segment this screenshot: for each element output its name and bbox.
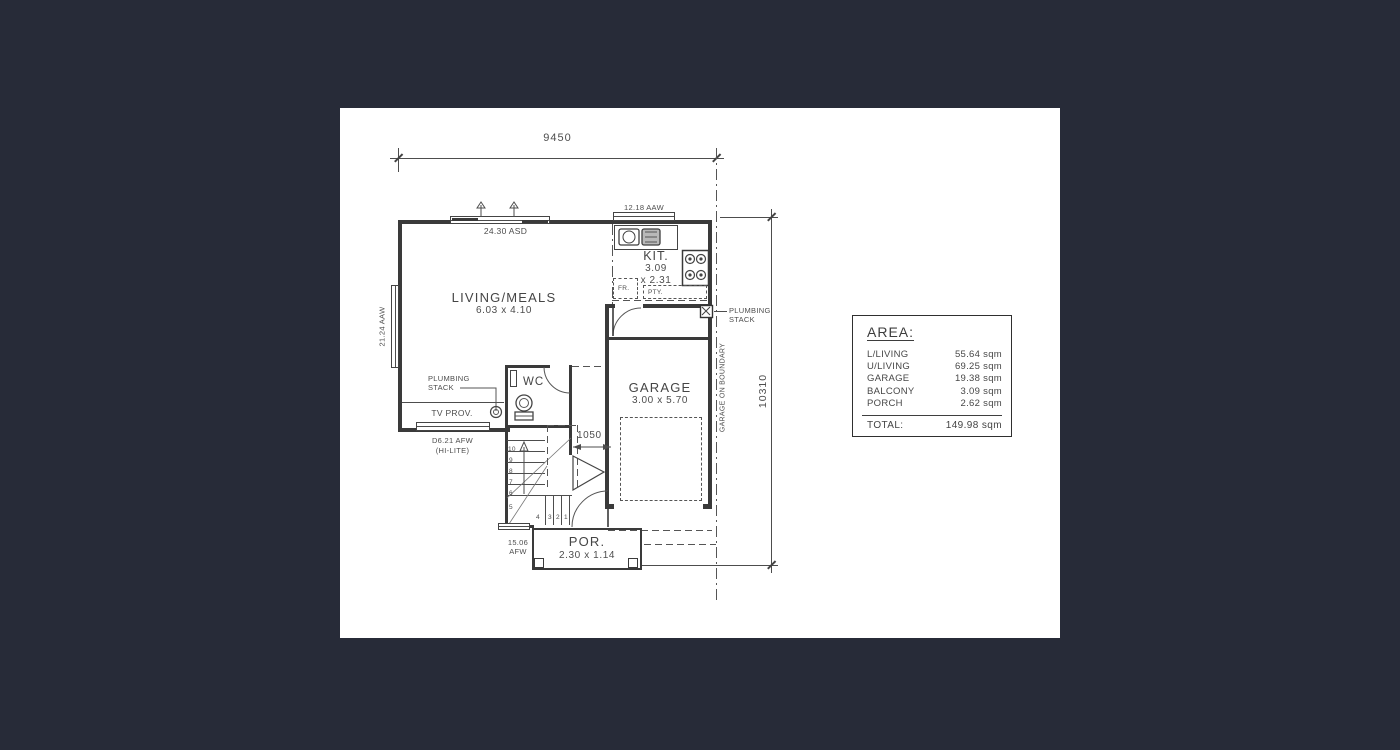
window-slider-label: 24.30 ASD <box>458 226 553 236</box>
window-kitchen-label: 12.18 AAW <box>610 203 678 212</box>
plumbing-left-label2: STACK <box>428 383 454 392</box>
stair-up-arrow-icon <box>518 440 530 496</box>
dim-top-ext-left <box>398 148 399 172</box>
stair-winder-lines <box>507 436 573 526</box>
fridge-label: FR. <box>618 285 629 292</box>
garage-door-jamb <box>703 504 712 509</box>
room-porch-name: POR. <box>536 534 638 549</box>
stair-number: 10 <box>508 446 516 453</box>
stair-number: 4 <box>536 514 540 521</box>
area-table-title: AREA: <box>867 324 1002 340</box>
area-total-row: TOTAL: 149.98 sqm <box>867 420 1002 431</box>
area-row-value: 69.25 sqm <box>955 361 1002 373</box>
room-living-size: 6.03 x 4.10 <box>424 305 584 316</box>
room-porch-size: 2.30 x 1.14 <box>536 550 638 561</box>
window-slider <box>450 216 550 224</box>
area-total-value: 149.98 sqm <box>946 420 1002 431</box>
cooktop-icon <box>682 250 709 286</box>
dim-top-label: 9450 <box>490 132 625 144</box>
stair-number: 1 <box>564 514 568 521</box>
area-row: BALCONY 3.09 sqm <box>867 386 1002 398</box>
window-kitchen <box>613 212 675 221</box>
room-living-name: LIVING/MEALS <box>424 290 584 305</box>
stair-number: 6 <box>509 490 513 497</box>
stair-void-line <box>547 425 548 491</box>
bulkhead-line <box>572 366 605 367</box>
wall-garage-top <box>605 337 712 340</box>
app-background: { "colors": { "page_bg": "#272b38", "can… <box>0 0 1400 750</box>
area-row-label: BALCONY <box>867 386 915 398</box>
window-left <box>391 285 399 368</box>
car-space <box>620 417 702 501</box>
boundary-line <box>716 148 717 600</box>
stair-number: 7 <box>509 479 513 486</box>
room-kitchen-size-w: 3.09 <box>628 263 684 274</box>
area-row: L/LIVING 55.64 sqm <box>867 349 1002 361</box>
window-left-label: 21.24 AAW <box>378 297 387 357</box>
area-table-divider <box>862 415 1002 416</box>
leader-line <box>714 311 727 312</box>
window-entry <box>498 523 530 530</box>
dim-stair-line <box>572 442 612 452</box>
window-porch-label1: 15.06 <box>505 538 531 547</box>
tv-nook-line <box>402 402 504 403</box>
window-hilite-label1: D6.21 AFW <box>410 436 495 445</box>
window-porch-label2: AFW <box>505 547 531 556</box>
entry-door-arc-icon <box>572 491 609 528</box>
stair-number: 2 <box>556 514 560 521</box>
plumbing-stack-icon <box>700 305 713 318</box>
plumbing-right-label1: PLUMBING <box>729 306 771 315</box>
area-row-label: U/LIVING <box>867 361 910 373</box>
area-row-value: 3.09 sqm <box>961 386 1002 398</box>
room-kitchen-name: KIT. <box>628 249 684 263</box>
area-total-label: TOTAL: <box>867 420 903 431</box>
room-wc-name: WC <box>523 376 544 388</box>
door-arc-icon <box>613 308 643 338</box>
pantry-label: PTY. <box>648 289 663 296</box>
room-garage-size: 3.00 x 5.70 <box>610 395 710 406</box>
area-row: U/LIVING 69.25 sqm <box>867 361 1002 373</box>
window-hilite-label2: (HI-LITE) <box>410 446 495 455</box>
door-swing-arrow-icon <box>474 201 488 217</box>
dim-right-line <box>771 209 772 573</box>
setback-dash-line <box>644 544 716 545</box>
door-arc-icon <box>544 367 571 394</box>
area-row-label: PORCH <box>867 398 903 410</box>
area-row: PORCH 2.62 sqm <box>867 398 1002 410</box>
toilet-icon <box>512 392 536 424</box>
sink-icon <box>618 228 668 247</box>
stair-number: 5 <box>509 504 513 511</box>
wall-garage-nib <box>605 304 609 338</box>
stair-number: 3 <box>548 514 552 521</box>
dim-top-line <box>390 158 724 159</box>
area-row-label: L/LIVING <box>867 349 908 361</box>
stair-number: 8 <box>509 468 513 475</box>
dim-right-ext-bottom <box>642 565 778 566</box>
tv-provision-label: TV PROV. <box>407 408 497 418</box>
stair-void-line <box>547 425 577 426</box>
area-table: AREA: L/LIVING 55.64 sqm U/LIVING 69.25 … <box>852 315 1012 437</box>
window-hilite <box>416 422 490 431</box>
area-row-value: 55.64 sqm <box>955 349 1002 361</box>
garage-access-door-icon <box>572 455 606 491</box>
boundary-note: GARAGE ON BOUNDARY <box>720 335 727 441</box>
basin-icon <box>510 370 517 387</box>
stair-number: 9 <box>509 457 513 464</box>
area-row-value: 19.38 sqm <box>955 373 1002 385</box>
dim-stair-label: 1050 <box>577 430 602 441</box>
area-row: GARAGE 19.38 sqm <box>867 373 1002 385</box>
kitchen-zone-line <box>612 300 708 301</box>
area-row-label: GARAGE <box>867 373 909 385</box>
door-swing-arrow-icon <box>507 201 521 217</box>
dim-right-label: 10310 <box>757 363 769 419</box>
area-row-value: 2.62 sqm <box>961 398 1002 410</box>
room-garage-name: GARAGE <box>610 380 710 395</box>
plumbing-right-label2: STACK <box>729 315 755 324</box>
plumbing-left-label1: PLUMBING <box>428 374 470 383</box>
floorplan-sheet: 9450 10310 GARAGE ON BOUNDARY 24.30 ASD … <box>340 108 1060 638</box>
